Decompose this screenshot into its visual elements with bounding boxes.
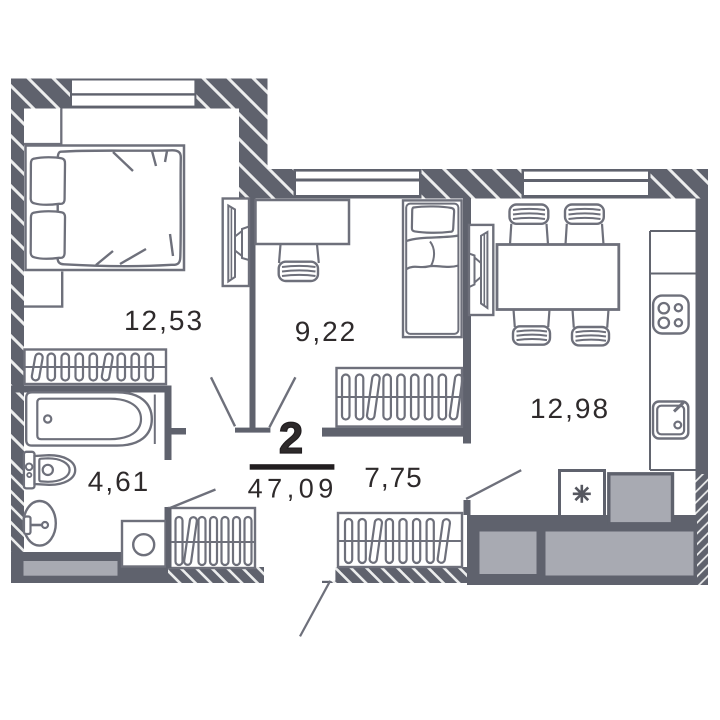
- svg-text:47,09: 47,09: [248, 473, 338, 503]
- svg-text:9,22: 9,22: [295, 316, 358, 347]
- svg-text:12,98: 12,98: [530, 393, 610, 424]
- svg-text:7,75: 7,75: [364, 462, 423, 493]
- svg-text:12,53: 12,53: [124, 305, 204, 336]
- svg-text:2: 2: [279, 414, 304, 463]
- svg-text:4,61: 4,61: [88, 466, 151, 497]
